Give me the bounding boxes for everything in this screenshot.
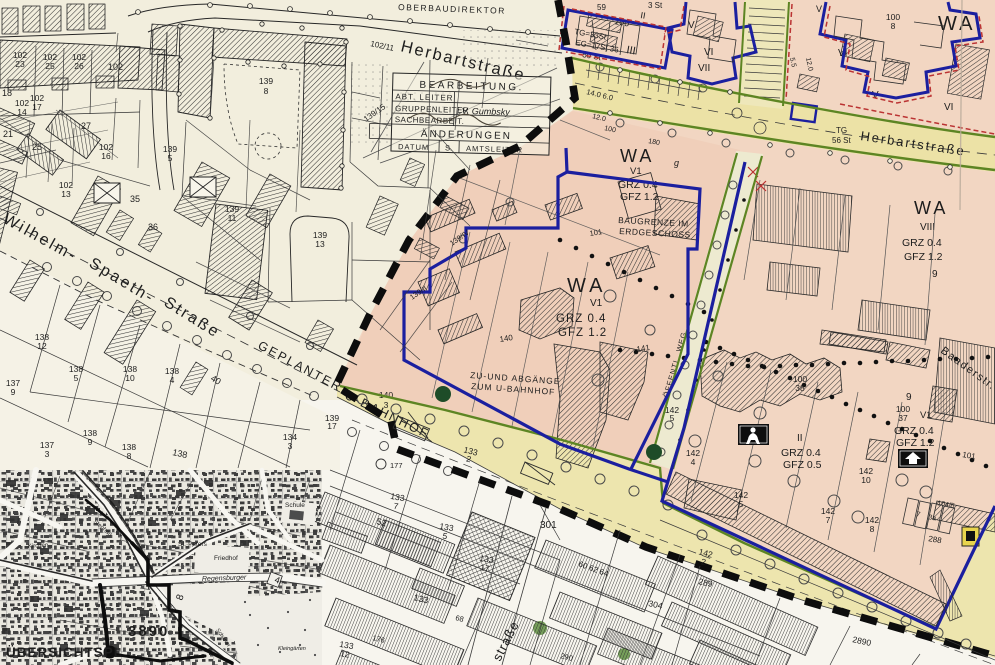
svg-text:GFZ 1.2: GFZ 1.2 [558, 327, 607, 339]
svg-text:V1: V1 [590, 298, 603, 309]
svg-text:i.V. Gumbsky: i.V. Gumbsky [457, 106, 511, 117]
svg-text:GRZ 0.4: GRZ 0.4 [781, 447, 821, 459]
svg-text:21: 21 [3, 129, 13, 139]
svg-text:ÄNDERUNGEN: ÄNDERUNGEN [421, 128, 512, 142]
svg-text:Friedhof: Friedhof [214, 555, 238, 562]
svg-text:35: 35 [130, 194, 140, 204]
svg-text:3 St: 3 St [648, 1, 663, 10]
svg-text:102: 102 [108, 62, 123, 72]
svg-text:GFZ 0.5: GFZ 0.5 [783, 459, 822, 471]
svg-text:177: 177 [390, 461, 403, 470]
svg-text:V: V [816, 4, 822, 14]
svg-text:GFZ 1.2: GFZ 1.2 [896, 437, 935, 449]
svg-text:DATUM: DATUM [398, 142, 429, 152]
svg-text:VI: VI [944, 102, 953, 113]
svg-text:TG: TG [836, 126, 847, 135]
svg-text:g: g [674, 158, 679, 168]
svg-text:V1: V1 [630, 166, 642, 177]
svg-text:Kleingärten: Kleingärten [278, 646, 306, 652]
svg-text:ÜBERSICHTSPL: ÜBERSICHTSPL [6, 645, 123, 660]
svg-text:S.: S. [445, 143, 452, 152]
svg-text:WA: WA [620, 146, 654, 166]
svg-text:ABT. LEITER: ABT. LEITER [395, 92, 453, 103]
svg-text:GRZ 0.4: GRZ 0.4 [556, 313, 606, 325]
svg-text:II: II [797, 433, 803, 444]
svg-text:59: 59 [597, 3, 606, 12]
svg-text:GRZ 0.4: GRZ 0.4 [894, 425, 934, 437]
svg-text:GRZ 0.4: GRZ 0.4 [902, 237, 942, 249]
svg-text:St.·Peters: St.·Peters [178, 541, 208, 548]
svg-text:Schule: Schule [285, 502, 305, 509]
svg-text:3890: 3890 [128, 623, 169, 640]
svg-text:56 St: 56 St [832, 136, 851, 145]
svg-text:18: 18 [2, 88, 12, 98]
svg-text:9: 9 [932, 269, 938, 280]
svg-text:V1: V1 [920, 410, 932, 421]
svg-text:WA: WA [914, 198, 948, 218]
svg-text:WA: WA [567, 275, 606, 297]
svg-text:VIII: VIII [920, 222, 935, 233]
svg-text:301: 301 [540, 520, 557, 531]
svg-text:VII: VII [698, 63, 710, 74]
svg-text:V: V [688, 20, 695, 31]
svg-text:SACHBEARBEIT.: SACHBEARBEIT. [395, 115, 465, 126]
svg-text:GFZ 1.2: GFZ 1.2 [620, 191, 659, 203]
svg-text:9: 9 [906, 392, 912, 403]
svg-text:GFZ 1.2: GFZ 1.2 [904, 251, 943, 263]
